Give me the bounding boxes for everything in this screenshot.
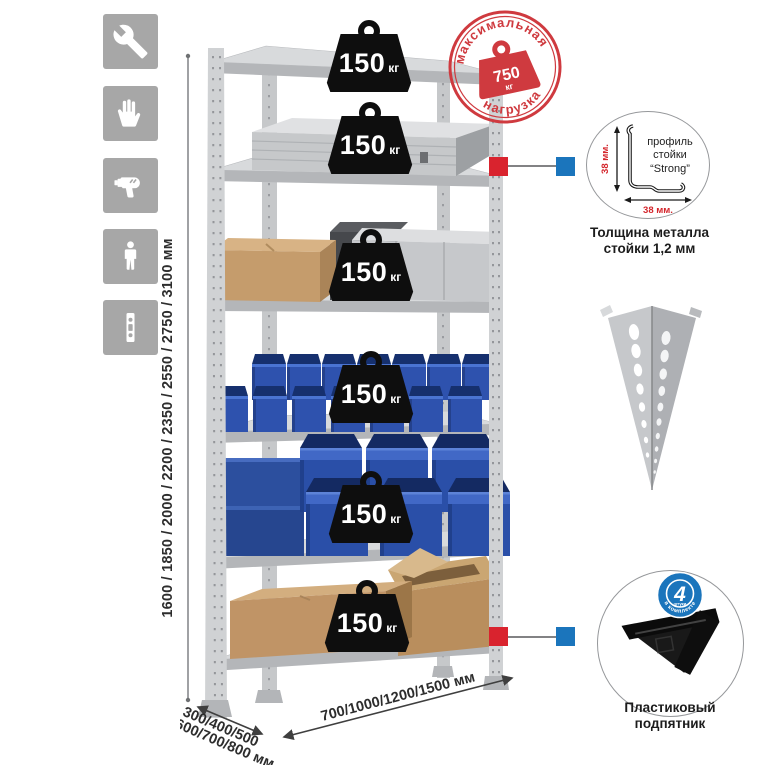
profile-callout-connector xyxy=(489,157,575,176)
badge-value: 150 xyxy=(340,130,387,161)
weight-badge: 150кг xyxy=(326,34,412,92)
badge-unit: кг xyxy=(390,392,401,406)
badge-unit: кг xyxy=(390,512,401,526)
profile-dim-vertical: 38 мм. xyxy=(600,144,611,174)
badge-unit: кг xyxy=(388,61,399,75)
badge-unit: кг xyxy=(386,621,397,635)
badge-value: 150 xyxy=(341,499,388,530)
perforated-post-icon xyxy=(103,300,158,355)
weight-badge: 150кг xyxy=(328,243,414,301)
kit-quantity-badge: 4 штуки в комплекте xyxy=(656,571,704,619)
width-dimension: 700/1000/1200/1500 мм xyxy=(284,669,512,737)
weight-badge: 150кг xyxy=(328,485,414,543)
profile-label-line2: стойки xyxy=(653,149,687,161)
foot-caption-line1: Пластиковый xyxy=(600,700,740,716)
width-label: 700/1000/1200/1500 мм xyxy=(319,669,476,724)
height-dimension-line xyxy=(186,54,190,702)
badge-unit: кг xyxy=(390,270,401,284)
profile-caption-line2: стойки 1,2 мм xyxy=(572,241,727,257)
foot-caption-line2: подпятник xyxy=(600,716,740,732)
profile-caption-line1: Толщина металла xyxy=(572,225,727,241)
drill-icon xyxy=(103,158,158,213)
person-icon xyxy=(103,229,158,284)
badge-value: 150 xyxy=(339,48,386,79)
kit-badge-small: штуки xyxy=(674,602,687,607)
cardboard-box-shelf3 xyxy=(212,238,336,302)
corner-post-image xyxy=(596,294,708,502)
foot-caption: Пластиковый подпятник xyxy=(600,700,740,733)
badge-value: 150 xyxy=(341,257,388,288)
profile-label-line3: “Strong” xyxy=(650,163,690,175)
badge-value: 150 xyxy=(337,608,384,639)
profile-caption: Толщина металла стойки 1,2 мм xyxy=(572,225,727,258)
badge-unit: кг xyxy=(389,143,400,157)
weight-badge: 150кг xyxy=(327,116,413,174)
infographic-canvas: 1600 / 1850 / 2000 / 2200 / 2350 / 2550 … xyxy=(0,0,765,765)
wrench-icon xyxy=(103,14,158,69)
profile-dim-horizontal: 38 мм. xyxy=(643,205,673,216)
height-dimension-label: 1600 / 1850 / 2000 / 2200 / 2350 / 2550 … xyxy=(160,148,178,708)
weight-badge: 150кг xyxy=(328,365,414,423)
badge-value: 150 xyxy=(341,379,388,410)
max-load-stamp: максимальная нагрузка 750 кг xyxy=(435,3,575,137)
foot-callout-connector xyxy=(489,627,575,646)
profile-detail-circle: 38 мм. 38 мм. профиль стойки “Strong” xyxy=(586,111,710,219)
profile-label-line1: профиль xyxy=(647,136,693,148)
weight-badge: 150кг xyxy=(324,594,410,652)
gloves-icon xyxy=(103,86,158,141)
